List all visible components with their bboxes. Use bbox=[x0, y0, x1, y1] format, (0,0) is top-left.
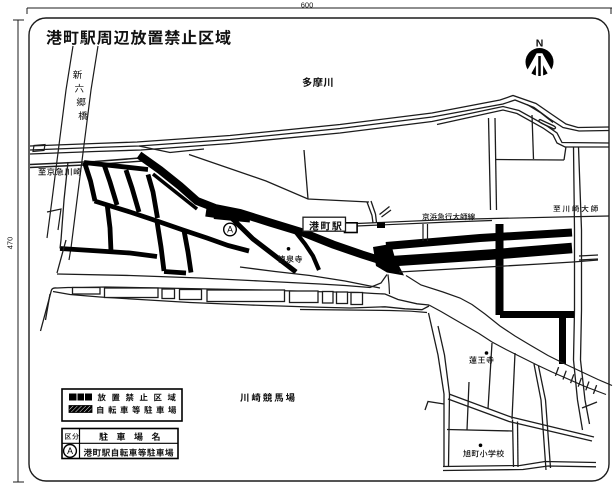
svg-text:N: N bbox=[536, 38, 544, 50]
svg-text:600: 600 bbox=[301, 1, 314, 10]
svg-text:A: A bbox=[227, 225, 233, 235]
svg-text:470: 470 bbox=[6, 237, 15, 250]
svg-text:A: A bbox=[67, 446, 73, 456]
